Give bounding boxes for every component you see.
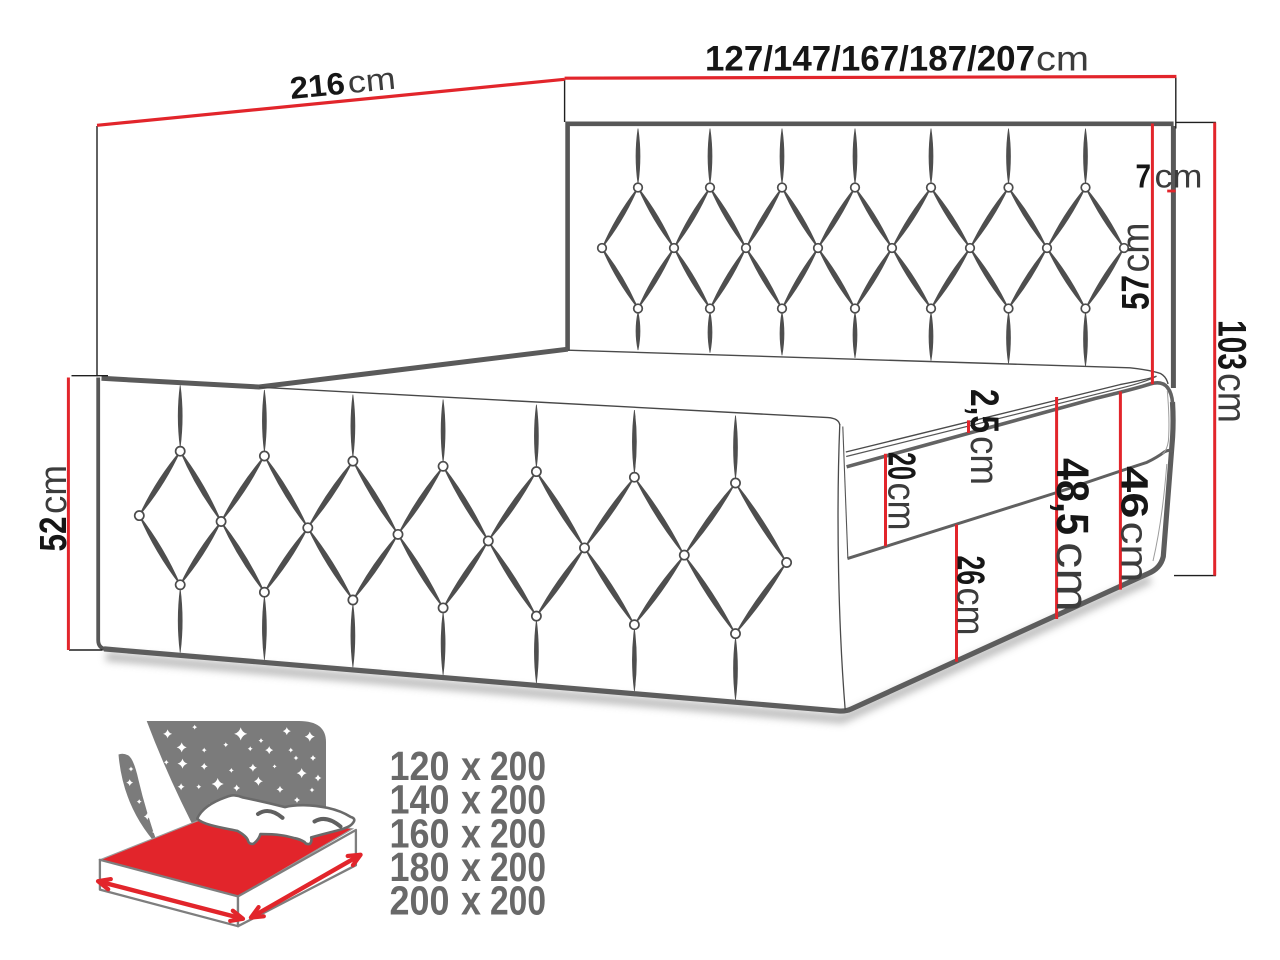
svg-text:cm: cm [1115,223,1158,273]
svg-text:52: 52 [33,517,75,552]
svg-text:200: 200 [390,878,450,924]
svg-text:cm: cm [1113,522,1155,583]
svg-text:127/147/167/187/207: 127/147/167/187/207 [705,40,1035,79]
svg-text:cm: cm [346,61,397,101]
svg-text:200: 200 [490,878,546,924]
svg-text:7: 7 [1136,157,1152,194]
svg-text:cm: cm [1036,40,1089,79]
svg-text:57: 57 [1115,275,1158,310]
svg-text:216: 216 [288,66,346,106]
svg-text:46: 46 [1113,466,1155,519]
svg-text:cm: cm [1047,542,1098,612]
svg-text:cm: cm [1210,373,1254,423]
svg-text:26: 26 [949,556,992,586]
svg-text:cm: cm [962,436,1006,485]
svg-text:cm: cm [33,465,75,514]
svg-text:cm: cm [880,483,923,531]
svg-text:cm: cm [1155,157,1203,194]
svg-text:2,5: 2,5 [962,389,1006,433]
svg-text:cm: cm [949,588,992,636]
svg-text:103: 103 [1210,320,1254,370]
svg-text:48,5: 48,5 [1047,458,1098,535]
svg-text:x: x [461,878,481,924]
svg-text:20: 20 [880,452,923,480]
